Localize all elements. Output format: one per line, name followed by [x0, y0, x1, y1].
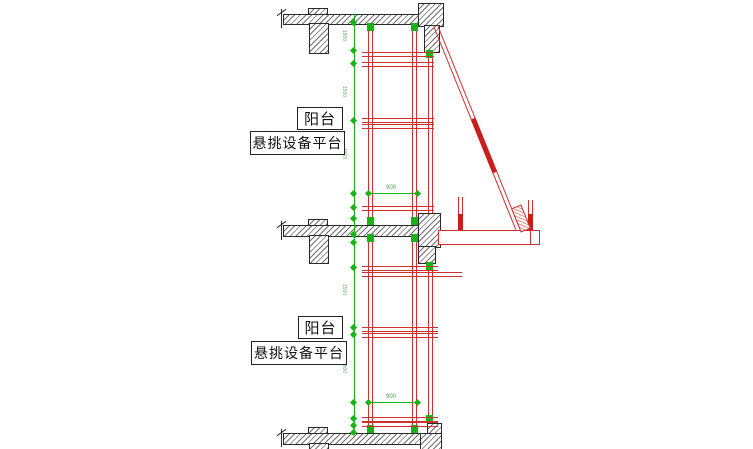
- wall-column-top-upper: [418, 3, 444, 27]
- balcony-label-upper: 阳台: [297, 107, 343, 130]
- platform-label-lower: 悬挑设备平台: [251, 341, 347, 365]
- anchor-clamp: [367, 234, 374, 242]
- chain-marker: [350, 264, 357, 271]
- platform-label-upper: 悬挑设备平台: [250, 131, 345, 155]
- scaffold-ledger: [362, 266, 438, 271]
- chain-marker: [350, 60, 357, 67]
- chain-marker: [350, 117, 357, 124]
- anchor-clamp: [367, 217, 374, 225]
- chain-marker: [350, 215, 357, 222]
- platform-post-right: [528, 200, 533, 215]
- platform-beam: [438, 230, 540, 245]
- anchor-clamp: [411, 217, 418, 225]
- scaffold-ledger: [362, 206, 434, 211]
- chain-marker: [350, 239, 357, 246]
- chain-dim-text: 1500: [341, 284, 346, 295]
- scaffold-ledger: [362, 333, 438, 338]
- scaffold-ledger: [362, 272, 462, 277]
- chain-marker: [350, 47, 357, 54]
- scaffold-ledger: [362, 52, 434, 57]
- bay-dimension-text-lower: 900: [386, 394, 396, 400]
- balcony-label-lower-text: 阳台: [304, 317, 336, 338]
- scaffold-ledger: [362, 62, 434, 67]
- balcony-label-lower: 阳台: [298, 316, 343, 339]
- drawing-canvas: 1800 1500 1800 1500 1800 900 900: [0, 0, 753, 449]
- anchor-clamp: [411, 234, 418, 242]
- chain-marker: [350, 204, 357, 211]
- chain-dim-text: 1800: [341, 30, 346, 41]
- balcony-label-upper-text: 阳台: [304, 108, 336, 129]
- platform-post-left-base: [458, 214, 463, 230]
- scaffold-ledger: [362, 327, 438, 332]
- platform-beam-end-line: [530, 231, 531, 244]
- scaffold-standard-c-upper: [428, 58, 433, 213]
- chain-marker: [350, 331, 357, 338]
- anchor-clamp: [411, 23, 418, 31]
- scaffold-ledger: [362, 422, 438, 427]
- scaffold-standard-c-lower: [428, 270, 433, 415]
- drop-beam-bot: [309, 443, 329, 449]
- drop-beam-top: [309, 23, 329, 54]
- platform-post-left: [458, 197, 463, 215]
- anchor-clamp: [367, 23, 374, 31]
- dimension-chain-line: [354, 14, 355, 433]
- bay-dimension-line-lower: [368, 402, 418, 403]
- chain-marker: [350, 190, 357, 197]
- chain-dim-text: 1500: [341, 86, 346, 97]
- scaffold-ledger: [362, 118, 434, 123]
- platform-label-upper-text: 悬挑设备平台: [253, 133, 343, 153]
- tie-rod-turnbuckle: [471, 118, 497, 174]
- drop-beam-mid: [309, 235, 329, 264]
- scaffold-ledger: [362, 124, 434, 129]
- chain-marker: [350, 399, 357, 406]
- diagonal-tie-rod: [433, 25, 520, 230]
- wall-column-bot-lower: [420, 433, 442, 449]
- platform-label-lower-text: 悬挑设备平台: [254, 343, 344, 363]
- bay-dimension-text-upper: 900: [386, 185, 396, 191]
- bay-dimension-line-upper: [368, 193, 418, 194]
